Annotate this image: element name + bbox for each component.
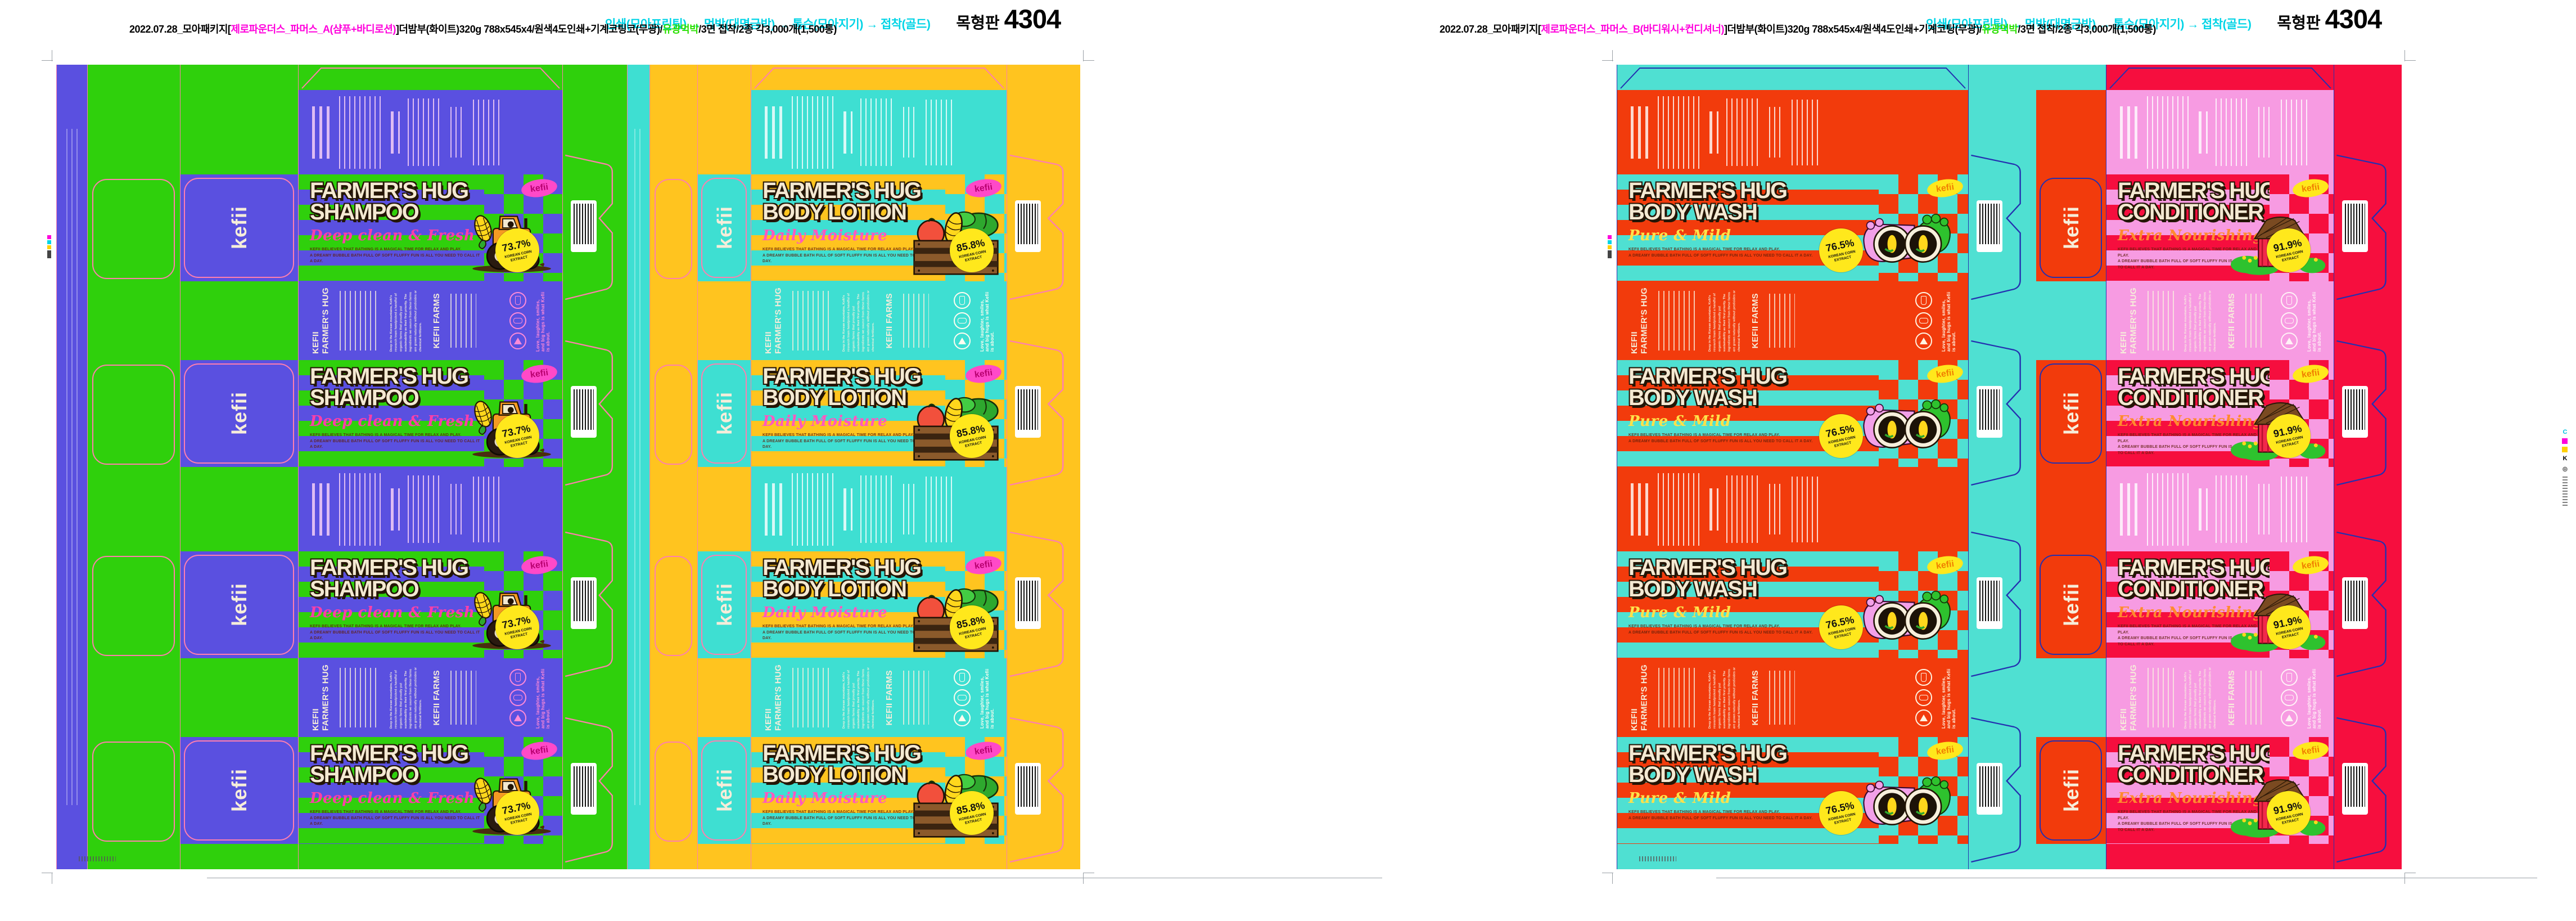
fine-print-column (408, 98, 443, 166)
side-fine-print-panel (2036, 467, 2106, 551)
brand-side-column: kefiikefiikefiikefii (180, 65, 299, 869)
tagline-line2: A DREAMY BUBBLE BATH FULL OF SOFT FLUFFY… (310, 816, 482, 828)
ingredients-panel (1617, 90, 1969, 174)
back-slogan: Love, laughter, smiles, and big hugs is … (2307, 290, 2322, 352)
back-brand-line2: FARMER'S HUG (1639, 287, 1649, 354)
product-tagline: KEFII BELIEVES THAT BATHING IS A MAGICAL… (310, 624, 482, 642)
crop-mark (42, 60, 53, 61)
brand-oval-badge: kefii (520, 177, 558, 200)
back-brand-line1: KEFII (1630, 331, 1639, 354)
back-brand-line1: KEFII (311, 331, 321, 354)
product-title-line1: FARMER'S HUG (310, 557, 482, 578)
barcode (2342, 577, 2368, 629)
brand-wordmark-rotated: kefii (228, 392, 251, 435)
brand-wordmark-rotated: kefii (228, 769, 251, 812)
side-fine-print-panel (2036, 90, 2106, 174)
stamp-inner-shape (514, 338, 522, 344)
back-brand-line2: FARMER'S HUG (2128, 664, 2138, 731)
yellow-patch (2562, 447, 2568, 452)
stamp-seal-icon (954, 689, 971, 706)
carton-stack-column: FARMER'S HUGSHAMPOODeep clean & FreshKEF… (298, 65, 563, 869)
fine-print-column (391, 111, 400, 154)
back-brand-line2: FARMER'S HUG (773, 287, 783, 354)
back-korean-text-block (792, 291, 833, 351)
product-tagline: KEFII BELIEVES THAT BATHING IS A MAGICAL… (310, 433, 482, 451)
carton-stack-column: FARMER'S HUGBODY WASHPure & MildKEFII BE… (1617, 65, 1969, 869)
back-brand-heading: KEFIIFARMER'S HUG (764, 287, 783, 354)
brand-wordmark: kefii (1936, 559, 1955, 571)
bottom-cut-line (207, 878, 1382, 878)
barcode (1015, 200, 1041, 252)
brand-wordmark-rotated: kefii (713, 392, 737, 435)
top-flap-dieline (2106, 65, 2334, 90)
fine-print-column (2216, 475, 2250, 543)
brand-wordmark-rotated: kefii (713, 206, 737, 249)
back-farms-list-block (1769, 671, 1795, 725)
tagline-line1: KEFII BELIEVES THAT BATHING IS A MAGICAL… (310, 433, 482, 439)
back-brand-heading: KEFIIFARMER'S HUG (311, 664, 331, 731)
stamp-inner-shape (1921, 296, 1927, 305)
brand-oval-badge: kefii (964, 177, 1003, 200)
plate-microtext (2563, 477, 2568, 506)
back-panel: KEFIIFARMER'S HUGDeep in the Korean moun… (299, 281, 563, 360)
registration-mark (47, 235, 51, 258)
fine-print-column (1726, 475, 1761, 543)
brand-wordmark: kefii (530, 744, 549, 757)
fine-print-column (1792, 100, 1819, 165)
brand-wordmark: kefii (530, 367, 549, 380)
spec-suffix: /3면 접착/2종 각3,000개(1,500통) (698, 24, 837, 35)
magenta-patch (2562, 438, 2568, 444)
fine-print-column (903, 484, 918, 534)
product-title-line1: FARMER'S HUG (763, 557, 943, 578)
back-slogan: Love, laughter, smiles, and big hugs is … (2307, 667, 2322, 729)
certification-stamps (1915, 292, 1932, 349)
bottom-cut-line (1716, 878, 2537, 878)
stamp-seal-icon (954, 669, 971, 686)
flap-column (87, 65, 181, 869)
back-korean-text-block (2148, 291, 2175, 351)
back-panel: KEFIIFARMER'S HUGDeep in the Korean moun… (1617, 281, 1969, 360)
brand-oval-badge: kefii (1926, 363, 1964, 385)
barcode-bars (1018, 204, 1038, 244)
flap-dieline-outline (92, 742, 175, 842)
product-title-line1: FARMER'S HUG (1628, 743, 1876, 764)
back-story-text: Deep in the Korean mountains, Kefii's re… (2183, 290, 2218, 352)
sheet-footer-microtext (1639, 856, 1676, 861)
brand-wordmark-rotated: kefii (2060, 769, 2083, 812)
back-farms-heading: KEFII FARMS (1751, 670, 1760, 725)
product-title-line1: FARMER'S HUG (2118, 366, 2267, 387)
crop-mark (1083, 873, 1094, 873)
spec-foil: 유광먹박 (662, 24, 698, 35)
plate-number: 4304 (2325, 3, 2382, 34)
brand-wordmark-rotated: kefii (2060, 583, 2083, 626)
brand-oval-badge: kefii (520, 554, 558, 577)
product-title-line1: FARMER'S HUG (310, 180, 482, 201)
stamp-inner-shape (959, 296, 965, 305)
fine-print-column (926, 100, 953, 165)
tagline-line1: KEFII BELIEVES THAT BATHING IS A MAGICAL… (310, 624, 482, 630)
barcode-flap-column (2334, 65, 2402, 869)
fine-print-column (860, 475, 895, 543)
brand-wordmark-rotated: kefii (2060, 206, 2083, 249)
fine-print-column (903, 107, 918, 158)
product-title-line2: BODY WASH (1628, 387, 1876, 408)
barcode (2342, 386, 2368, 438)
brand-oval-badge: kefii (2291, 363, 2330, 385)
top-flap-dieline (1617, 65, 1969, 90)
back-farms-heading: KEFII FARMS (2227, 670, 2236, 725)
front-panel: FARMER'S HUGBODY LOTIONDaily MoistureKEF… (751, 551, 1007, 658)
spec-product-name: 제로파운더스_파머스_A(샴푸+바디로션) (231, 24, 395, 35)
front-panel: FARMER'S HUGBODY LOTIONDaily MoistureKEF… (751, 174, 1007, 281)
barcode (1977, 200, 2002, 252)
brand-wordmark: kefii (2301, 182, 2320, 194)
stamp-seal-icon (2281, 312, 2298, 329)
back-farms-list-block (1769, 294, 1795, 348)
fine-print-column (1631, 483, 1650, 536)
flap-dieline-outline (655, 179, 692, 279)
fine-print-column (2120, 483, 2139, 536)
back-panel: KEFIIFARMER'S HUGDeep in the Korean moun… (299, 658, 563, 737)
brand-oval-badge: kefii (1926, 177, 1964, 200)
stamp-seal-icon (2281, 333, 2298, 349)
product-title-line2: BODY WASH (1628, 578, 1876, 600)
fine-print-column (450, 484, 465, 534)
stamp-inner-shape (513, 318, 522, 324)
crop-mark (2404, 50, 2405, 61)
back-brand-heading-text: KEFIIFARMER'S HUG (764, 664, 783, 731)
barcode (1977, 577, 2002, 629)
front-title-zone: FARMER'S HUGSHAMPOODeep clean & FreshKEF… (310, 180, 482, 265)
stamp-inner-shape (513, 695, 522, 700)
product-title-line1: FARMER'S HUG (2118, 743, 2267, 764)
certification-stamps (2281, 292, 2298, 349)
binoculars-with-corn-illustration (1846, 769, 1964, 842)
front-panel: FARMER'S HUGBODY WASHPure & MildKEFII BE… (1617, 360, 1969, 467)
barcode-bars (2345, 766, 2365, 807)
fine-print-column (2147, 473, 2191, 546)
brand-oval-badge: kefii (2291, 740, 2330, 762)
back-story-text: Deep in the Korean mountains, Kefii's re… (2183, 667, 2218, 729)
brand-side-panel: kefii (2036, 551, 2106, 658)
brand-side-panel: kefii (181, 551, 299, 658)
fine-print-column (926, 477, 953, 542)
certification-stamps (954, 669, 971, 726)
brand-wordmark: kefii (974, 744, 993, 757)
barcode-bars (574, 389, 594, 430)
back-story-text: Deep in the Korean mountains, Kefii's re… (389, 290, 423, 352)
back-farms-list-block (2245, 294, 2263, 348)
stamp-seal-icon (2281, 709, 2298, 726)
brand-wordmark: kefii (974, 182, 993, 194)
brand-wordmark: kefii (530, 182, 549, 194)
back-panel: KEFIIFARMER'S HUGDeep in the Korean moun… (751, 658, 1007, 737)
stamp-seal-icon (954, 709, 971, 726)
tagline-line2: A DREAMY BUBBLE BATH FULL OF SOFT FLUFFY… (310, 439, 482, 451)
fine-print-column (2281, 477, 2308, 542)
brand-wordmark: kefii (974, 559, 993, 571)
ingredients-panel (751, 90, 1007, 174)
top-flap-dieline (299, 65, 563, 90)
brand-side-panel: kefii (181, 360, 299, 467)
barcode (2342, 200, 2368, 252)
stamp-inner-shape (2285, 338, 2293, 344)
product-subtitle: Deep clean & Fresh (310, 604, 482, 621)
spec-foil: 유광먹박 (1982, 24, 2018, 35)
front-panel: FARMER'S HUGSHAMPOODeep clean & FreshKEF… (299, 360, 563, 467)
back-brand-line2: FARMER'S HUG (321, 287, 330, 354)
barcode (571, 763, 597, 815)
crop-mark (1612, 873, 1613, 884)
crop-mark (1602, 60, 1613, 61)
back-farms-list-block (903, 671, 929, 725)
left-sheet-spec-line: 2022.07.28_모아패키지[제로파운더스_파머스_A(샴푸+바디로션)]더… (129, 21, 837, 36)
top-flap-dieline (751, 65, 1007, 90)
stamp-inner-shape (958, 338, 966, 344)
print-proof-canvas: { "headers": { "left": { "process": "인쇄(… (0, 0, 2576, 921)
product-title-line1: FARMER'S HUG (2118, 180, 2267, 201)
fine-print-column (2216, 98, 2250, 166)
brand-side-panel: kefii (698, 551, 751, 658)
product-title-line1: FARMER'S HUG (1628, 557, 1876, 578)
stamp-seal-icon (954, 292, 971, 309)
spec-prefix: 2022.07.28_모아패키지[ (1440, 24, 1541, 35)
barcode-bars (574, 581, 594, 621)
front-panel: FARMER'S HUGCONDITIONERExtra NourishingK… (2106, 551, 2334, 658)
back-brand-line1: KEFII (311, 708, 321, 731)
back-farms-heading: KEFII FARMS (885, 293, 894, 348)
crop-mark (1083, 873, 1084, 884)
brand-wordmark: kefii (530, 559, 549, 571)
back-slogan: Love, laughter, smiles, and big hugs is … (535, 667, 551, 729)
stamp-seal-icon (509, 312, 526, 329)
brand-side-column: kefiikefiikefiikefii (2036, 65, 2106, 869)
stamp-seal-icon (1915, 312, 1932, 329)
ingredients-panel (299, 90, 563, 174)
fine-print-column (860, 98, 895, 166)
fine-print-column (843, 111, 852, 154)
ingredients-panel (751, 467, 1007, 551)
stamp-inner-shape (515, 296, 521, 305)
stamp-inner-shape (2286, 296, 2292, 305)
stamp-inner-shape (2286, 673, 2292, 682)
stamp-inner-shape (515, 673, 521, 682)
brand-oval-badge: kefii (2291, 177, 2330, 200)
stamp-inner-shape (1919, 318, 1928, 324)
back-brand-heading-text: KEFIIFARMER'S HUG (311, 664, 331, 731)
crop-mark (52, 873, 52, 884)
back-brand-heading-text: KEFIIFARMER'S HUG (2119, 287, 2139, 354)
back-story-text: Deep in the Korean mountains, Kefii's re… (842, 667, 876, 729)
back-panel: KEFIIFARMER'S HUGDeep in the Korean moun… (751, 281, 1007, 360)
back-farms-list-block (2245, 671, 2263, 725)
stamp-inner-shape (514, 715, 522, 721)
brand-wordmark: kefii (1936, 367, 1955, 380)
stamp-seal-icon (509, 709, 526, 726)
product-subtitle: Deep clean & Fresh (310, 227, 482, 244)
flap-dieline-outline (655, 742, 692, 842)
plate-label: 목형판 (956, 11, 999, 33)
crop-mark (42, 873, 53, 873)
back-brand-heading-text: KEFIIFARMER'S HUG (311, 287, 331, 354)
back-farms-heading: KEFII FARMS (2227, 293, 2236, 348)
barcode-flap-column (1007, 65, 1080, 869)
spec-mid: ]더밤부(화이트)320g 788x545x4/원색4도인쇄+기계코팅코(무광)… (396, 24, 662, 35)
brand-oval-badge: kefii (964, 554, 1003, 577)
back-brand-line2: FARMER'S HUG (2128, 287, 2138, 354)
back-panel: KEFIIFARMER'S HUGDeep in the Korean moun… (1617, 658, 1969, 737)
back-korean-text-block (340, 291, 380, 351)
back-brand-heading: KEFIIFARMER'S HUG (764, 664, 783, 731)
brand-side-panel: kefii (2036, 360, 2106, 467)
brand-oval-badge: kefii (964, 363, 1003, 385)
fine-print-column (843, 488, 852, 531)
fine-print-column (2199, 111, 2208, 154)
brand-oval-badge: kefii (520, 740, 558, 762)
flap-dieline-outline (655, 365, 692, 465)
barcode-bars (574, 766, 594, 807)
spec-suffix: /3면 접착/2종 각3,000개(1,500통) (2018, 24, 2156, 35)
barcode-flap-column (562, 65, 628, 869)
back-panel: KEFIIFARMER'S HUGDeep in the Korean moun… (2106, 281, 2334, 360)
front-title-zone: FARMER'S HUGSHAMPOODeep clean & FreshKEF… (310, 557, 482, 642)
brand-side-panel: kefii (2036, 174, 2106, 281)
product-title-line1: FARMER'S HUG (310, 366, 482, 387)
product-title-line1: FARMER'S HUG (2118, 557, 2267, 578)
fine-print-column (408, 475, 443, 543)
back-brand-line2: FARMER'S HUG (773, 664, 783, 731)
fine-print-column (792, 473, 836, 546)
back-korean-text-block (2148, 668, 2175, 727)
fine-print-column (1631, 106, 1650, 159)
fine-print-column (1726, 98, 1761, 166)
brand-side-column: kefiikefiikefiikefii (697, 65, 751, 869)
fine-print-column (1658, 473, 1702, 546)
registration-mark (1608, 235, 1612, 258)
stamp-inner-shape (958, 318, 967, 324)
black-patch-label: K (2563, 455, 2567, 462)
stamp-seal-icon (2281, 669, 2298, 686)
crop-mark (2404, 60, 2416, 61)
back-brand-heading: KEFIIFARMER'S HUG (2119, 664, 2139, 731)
back-brand-line2: FARMER'S HUG (1639, 664, 1649, 731)
back-farms-list-block (450, 294, 476, 348)
back-farms-list-block (903, 294, 929, 348)
brand-side-panel: kefii (2036, 737, 2106, 844)
product-title-line1: FARMER'S HUG (763, 180, 943, 201)
glue-strip-column (56, 65, 88, 869)
crop-mark (1612, 50, 1613, 61)
plate-number: 4304 (1004, 3, 1061, 34)
certification-stamps (1915, 669, 1932, 726)
spec-mid: ]더밤부(화이트)320g 788x545x4/원색4도인쇄+기계코팅(무광)/ (1724, 24, 1982, 35)
brand-oval-badge: kefii (964, 740, 1003, 762)
sheet-footer-microtext (79, 856, 116, 861)
tagline-line1: KEFII BELIEVES THAT BATHING IS A MAGICAL… (310, 810, 482, 816)
back-slogan: Love, laughter, smiles, and big hugs is … (1941, 667, 1956, 729)
stamp-inner-shape (2285, 318, 2294, 324)
barcode-bars (574, 204, 594, 244)
back-farms-heading: KEFII FARMS (885, 670, 894, 725)
brand-oval-badge: kefii (2291, 554, 2330, 577)
crop-mark (52, 50, 52, 61)
stamp-seal-icon (509, 333, 526, 349)
binoculars-with-corn-illustration (1846, 583, 1964, 656)
product-tagline: KEFII BELIEVES THAT BATHING IS A MAGICAL… (310, 247, 482, 265)
brand-wordmark: kefii (1936, 744, 1955, 757)
flap-column (649, 65, 698, 869)
product-title-line1: FARMER'S HUG (1628, 180, 1876, 201)
back-brand-line1: KEFII (2119, 331, 2128, 354)
ingredients-panel (2106, 467, 2334, 551)
fine-print-column (2199, 488, 2208, 531)
front-panel: FARMER'S HUGCONDITIONERExtra NourishingK… (2106, 737, 2334, 844)
crop-mark (1083, 60, 1094, 61)
tagline-line1: KEFII BELIEVES THAT BATHING IS A MAGICAL… (310, 247, 482, 253)
brand-wordmark: kefii (1936, 182, 1955, 194)
back-brand-heading-text: KEFIIFARMER'S HUG (2119, 664, 2139, 731)
stamp-inner-shape (1920, 338, 1928, 344)
barcode (571, 577, 597, 629)
stamp-seal-icon (1915, 333, 1932, 349)
brand-wordmark: kefii (2301, 744, 2320, 757)
back-brand-line1: KEFII (2119, 708, 2128, 731)
barcode (1015, 577, 1041, 629)
barcode-bars (2345, 581, 2365, 621)
fine-print-column (1769, 107, 1784, 158)
product-title-line2: SHAMPOO (310, 387, 482, 408)
back-brand-heading-text: KEFIIFARMER'S HUG (1630, 664, 1649, 731)
barcode (2342, 763, 2368, 815)
barcode (1977, 763, 2002, 815)
barcode-bars (2345, 389, 2365, 430)
cmyk-color-bar: C K ⊕ (2562, 429, 2568, 506)
brand-oval-badge: kefii (1926, 740, 1964, 762)
brand-side-panel: kefii (698, 174, 751, 281)
strip-fine-print (66, 129, 79, 805)
back-slogan: Love, laughter, smiles, and big hugs is … (1941, 290, 1956, 352)
barcode (1977, 386, 2002, 438)
brand-wordmark-rotated: kefii (228, 206, 251, 249)
crosshair-target-icon: ⊕ (2562, 465, 2568, 474)
stamp-inner-shape (2285, 715, 2293, 721)
binoculars-with-corn-illustration (1846, 206, 1964, 279)
stamp-seal-icon (509, 689, 526, 706)
stamp-inner-shape (1920, 715, 1928, 721)
stamp-seal-icon (509, 669, 526, 686)
barcode-bars (2345, 204, 2365, 244)
brand-side-panel: kefii (698, 360, 751, 467)
certification-stamps (509, 669, 526, 726)
fine-print-column (391, 488, 400, 531)
fine-print-column (339, 96, 383, 169)
barcode-flap-column (1968, 65, 2036, 869)
barcode-bars (1018, 389, 1038, 430)
back-brand-line1: KEFII (1630, 708, 1639, 731)
product-subtitle: Deep clean & Fresh (310, 413, 482, 430)
front-panel: FARMER'S HUGCONDITIONERExtra NourishingK… (2106, 360, 2334, 467)
back-slogan: Love, laughter, smiles, and big hugs is … (980, 667, 995, 729)
barcode-bars (1979, 204, 2000, 244)
fine-print-column (312, 106, 331, 159)
back-story-text: Deep in the Korean mountains, Kefii's re… (1708, 290, 1742, 352)
fine-print-column (1658, 96, 1702, 169)
stamp-seal-icon (2281, 689, 2298, 706)
fine-print-column (1769, 484, 1784, 534)
spec-product-name: 제로파운더스_파머스_B(바디워시+컨디셔너) (1541, 24, 1724, 35)
